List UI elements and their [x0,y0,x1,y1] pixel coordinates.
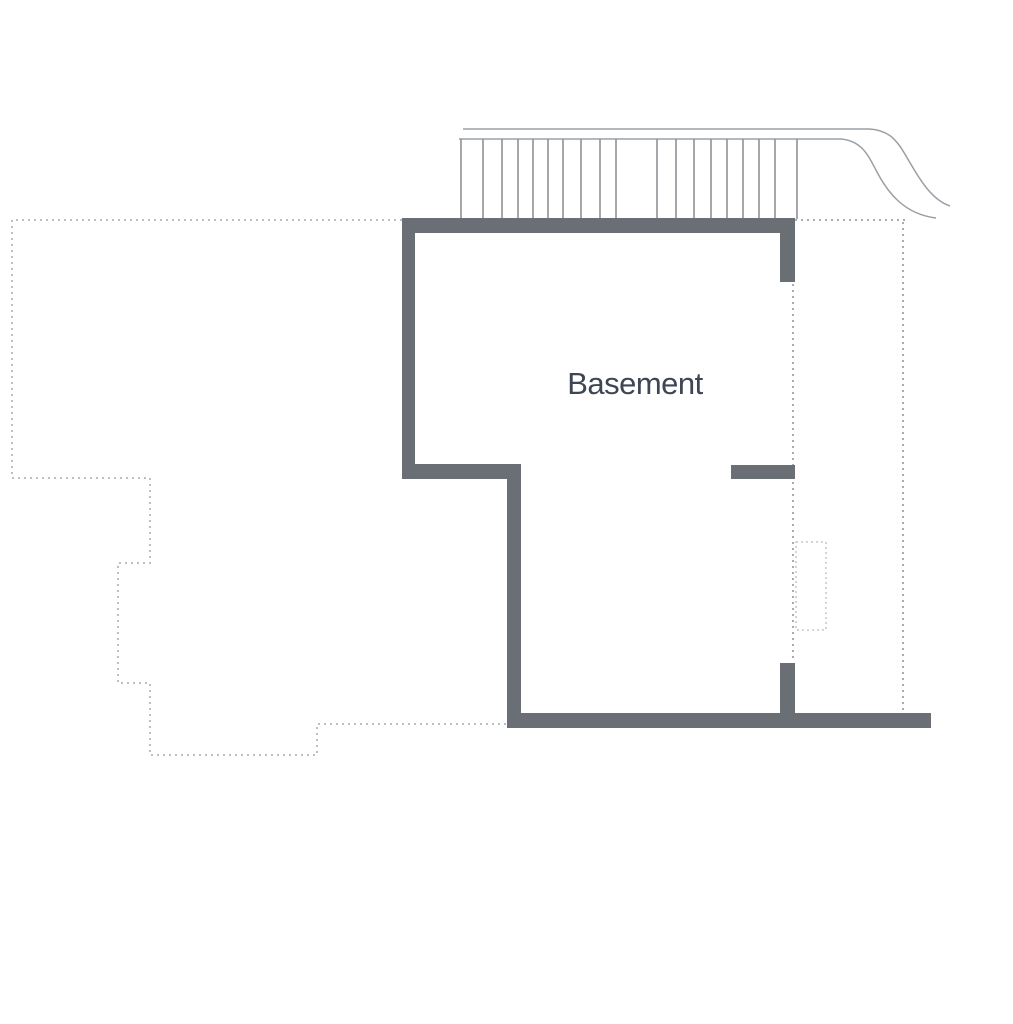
rail-inner-line [459,139,936,218]
rail-outer-line [463,129,950,206]
wall-step-horizontal [402,464,521,479]
foundation-outline-dotted [12,220,908,755]
wall-right-top-stub [780,218,795,282]
wall-left [402,218,415,479]
window-well [796,542,826,630]
wall-bottom [507,713,931,728]
wall-right-bottom-stub [780,663,795,715]
wall-top [402,218,795,233]
stair-treads [461,139,797,219]
basement-walls [402,218,931,728]
left-foundation-outline [12,220,508,755]
wall-interior-stub [731,465,795,479]
floor-plan-page: Basement [0,0,1013,1024]
floor-plan-drawing [0,0,1013,1024]
room-label-basement: Basement [535,366,735,402]
wall-mid-vertical [507,464,521,728]
